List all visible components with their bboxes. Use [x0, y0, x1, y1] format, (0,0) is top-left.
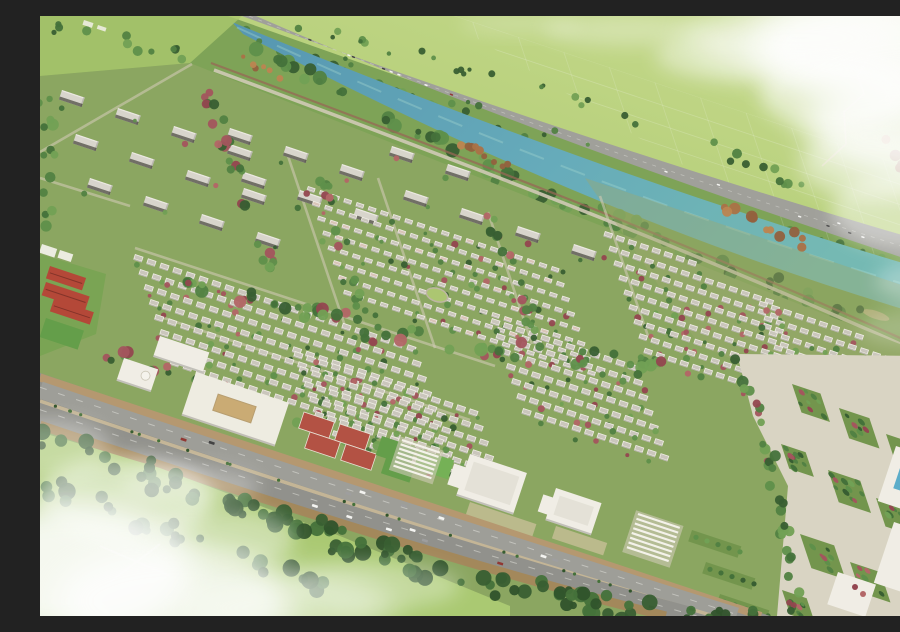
atmosphere-haze [40, 16, 900, 616]
aerial-render-figure [40, 16, 900, 616]
aerial-community-render [40, 16, 900, 616]
